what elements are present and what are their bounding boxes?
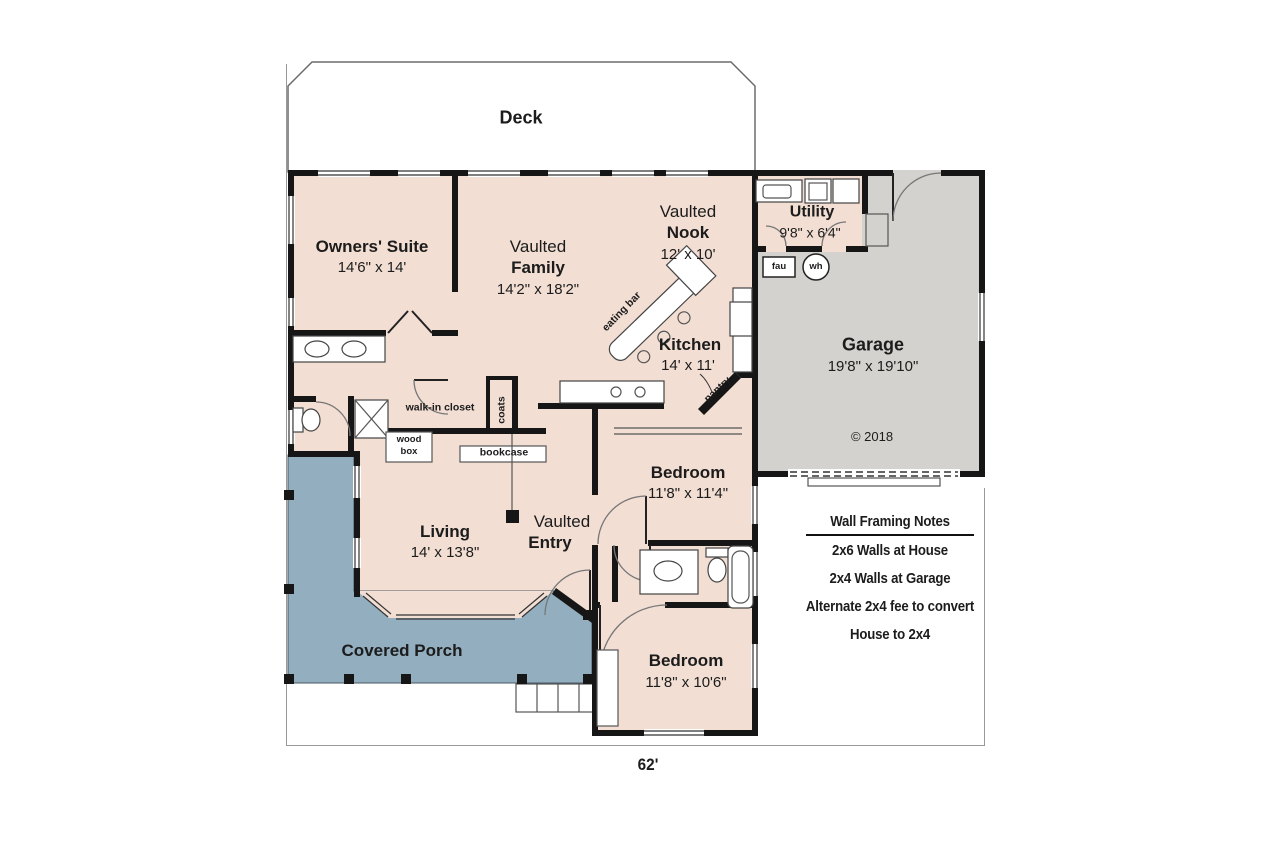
nook-label-line1: Vaulted xyxy=(660,203,716,221)
notes-line-1: 2x6 Walls at House xyxy=(832,543,948,559)
notes-line-2: 2x4 Walls at Garage xyxy=(830,571,951,587)
bedroom1-label: Bedroom xyxy=(651,464,726,482)
bookcase-label: bookcase xyxy=(480,447,528,458)
overall-width-dimension: 62' xyxy=(638,756,659,774)
porch-steps xyxy=(516,684,598,712)
living-dims: 14' x 13'8" xyxy=(411,545,480,561)
bedroom2-dims: 11'8" x 10'6" xyxy=(645,675,726,691)
garage-label: Garage xyxy=(842,336,904,355)
garage-copyright: © 2018 xyxy=(851,430,893,444)
entry-label-line1: Vaulted xyxy=(534,513,590,531)
wood-box-label-line2: box xyxy=(401,447,418,457)
owners-suite-label: Owners' Suite xyxy=(316,238,429,256)
floor-plan-page: Deck Owners' Suite 14'6" x 14' Vaulted F… xyxy=(0,0,1280,853)
kitchen-label: Kitchen xyxy=(659,336,721,354)
notes-line-4: House to 2x4 xyxy=(850,627,930,643)
entry-label-line2: Entry xyxy=(528,534,571,552)
fau-label: fau xyxy=(772,262,786,272)
bay-window-footprint xyxy=(357,591,553,618)
nook-label-line2: Nook xyxy=(667,224,710,242)
utility-label: Utility xyxy=(790,205,834,222)
bedroom2-label: Bedroom xyxy=(649,652,724,670)
family-dims: 14'2" x 18'2" xyxy=(497,282,579,298)
family-label-line1: Vaulted xyxy=(510,238,566,256)
family-label-line2: Family xyxy=(511,259,565,277)
utility-dims: 9'8" x 6'4" xyxy=(779,226,840,241)
notes-line-3: Alternate 2x4 fee to convert xyxy=(806,599,974,615)
porch-label: Covered Porch xyxy=(342,642,463,660)
kitchen-dims: 14' x 11' xyxy=(661,358,715,374)
walk-in-closet-label: walk-in closet xyxy=(406,402,475,413)
deck-label: Deck xyxy=(499,109,542,128)
owners-suite-dims: 14'6" x 14' xyxy=(338,260,407,276)
living-label: Living xyxy=(420,523,470,541)
coats-label: coats xyxy=(496,396,507,423)
bedroom1-dims: 11'8" x 11'4" xyxy=(648,486,728,502)
wh-label: wh xyxy=(809,262,822,272)
notes-title: Wall Framing Notes xyxy=(830,514,950,530)
floor-plan-drawing xyxy=(0,0,1280,853)
garage-dims: 19'8" x 19'10" xyxy=(828,359,919,375)
wood-box-label-line1: wood xyxy=(397,435,422,445)
nook-dims: 12' x 10' xyxy=(661,247,716,263)
